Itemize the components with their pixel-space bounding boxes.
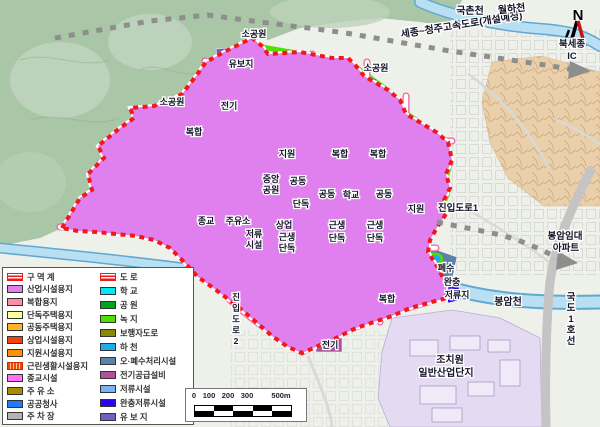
legend-item: 상업시설용지 <box>7 335 98 346</box>
legend-item: 주 차 장 <box>7 411 98 422</box>
map-label: 소공원 <box>242 28 267 39</box>
legend-item: 주 유 소 <box>7 385 98 396</box>
legend-item: 하 천 <box>100 341 191 352</box>
legend-item: 종교시설 <box>7 373 98 384</box>
scale-segment <box>214 411 233 416</box>
map-label: 봉암천 <box>494 295 522 308</box>
map-label: 지원 <box>408 203 425 214</box>
legend-item: 산업시설용지 <box>7 284 98 295</box>
legend-item: 저류시설 <box>100 383 191 394</box>
map-label: IC <box>567 51 577 62</box>
map-label: 북세종 <box>559 38 585 50</box>
legend-label: 오·폐수처리시설 <box>120 355 176 367</box>
legend-item: 공공청사 <box>7 398 98 409</box>
hill-patch <box>108 14 192 70</box>
legend-label: 지원시설용지 <box>27 347 73 359</box>
legend-item: 전기공급설비 <box>100 369 191 380</box>
legend-swatch <box>100 357 116 365</box>
legend-swatch <box>7 311 23 319</box>
legend-swatch <box>7 273 23 281</box>
legend-swatch <box>7 412 23 420</box>
legend-swatch <box>100 343 116 351</box>
map-label: 저류 <box>246 228 263 239</box>
scale-bar: 0100200300500m <box>185 388 307 422</box>
map-label: 공원 <box>263 184 280 195</box>
map-label: 진입도로1 <box>438 202 479 214</box>
map-label: 소공원 <box>364 62 389 73</box>
map-label: 근생 <box>367 219 384 230</box>
legend-item: 학 교 <box>100 285 191 296</box>
legend-item: 공 원 <box>100 299 191 310</box>
legend-label: 종교시설 <box>27 372 58 384</box>
scale-tick: 100 <box>203 391 216 400</box>
legend-item: 지원시설용지 <box>7 347 98 358</box>
map-label: 주유소 <box>226 216 252 226</box>
legend-item: 오·폐수처리시설 <box>100 355 191 366</box>
legend-swatch <box>100 273 116 281</box>
map-label: 중앙 <box>263 173 280 184</box>
scale-segment <box>253 411 272 416</box>
map-label: 공동 <box>319 189 336 199</box>
legend-label: 공공청사 <box>27 398 58 410</box>
map-label: 아파트 <box>553 242 579 254</box>
map-label: 근생 <box>329 219 346 230</box>
legend-swatch <box>100 399 116 407</box>
legend-label: 유 보 지 <box>120 411 148 423</box>
map-label: 단독 <box>293 198 310 209</box>
legend-item: 공동주택용지 <box>7 322 98 333</box>
legend-swatch <box>7 323 23 331</box>
legend-label: 학 교 <box>120 285 138 297</box>
legend-item: 복합용지 <box>7 296 98 307</box>
map-label: 폐수 <box>438 262 455 273</box>
legend-label: 주 유 소 <box>27 385 55 397</box>
legend-swatch <box>7 349 23 357</box>
legend-swatch <box>100 413 116 421</box>
legend-label: 상업시설용지 <box>27 334 73 346</box>
map-label: 지원 <box>279 148 296 159</box>
legend-label: 도 로 <box>120 271 138 283</box>
map-label: 복합 <box>379 293 396 304</box>
map-label: 종교 <box>198 216 215 226</box>
map-label: 단독 <box>367 232 384 243</box>
legend-label: 전기공급설비 <box>120 369 166 381</box>
map-label: 학교 <box>343 189 360 200</box>
legend-swatch <box>7 336 23 344</box>
legend-label: 단독주택용지 <box>27 309 73 321</box>
map-label: 시설 <box>246 239 263 250</box>
map-label: 유보지 <box>229 58 254 69</box>
legend-label: 산업시설용지 <box>27 283 73 295</box>
legend-box: 구 역 계산업시설용지복합용지단독주택용지공동주택용지상업시설용지지원시설용지근… <box>2 267 194 425</box>
legend-label: 공동주택용지 <box>27 321 73 333</box>
legend-swatch <box>100 315 116 323</box>
legend-swatch <box>100 301 116 309</box>
scale-segment <box>272 411 291 416</box>
legend-label: 보행자도로 <box>120 327 158 339</box>
legend-swatch <box>100 287 116 295</box>
map-label: 근생 <box>279 231 296 242</box>
legend-item: 구 역 계 <box>7 271 98 282</box>
scale-segment <box>233 411 252 416</box>
map-label: 공동 <box>376 189 393 199</box>
legend-swatch <box>100 385 116 393</box>
legend-column-left: 구 역 계산업시설용지복합용지단독주택용지공동주택용지상업시설용지지원시설용지근… <box>7 271 98 422</box>
legend-item: 유 보 지 <box>100 411 191 422</box>
legend-item: 녹 지 <box>100 313 191 324</box>
scale-tick: 500m <box>271 391 290 400</box>
scale-tick: 0 <box>192 391 196 400</box>
landuse-map-page: N 세종~청주고속도로(개설예정)국촌천월하천북세종IC소공원유보지소공원소공원… <box>0 0 600 427</box>
legend-item: 단독주택용지 <box>7 309 98 320</box>
legend-swatch <box>7 285 23 293</box>
scale-tick-labels: 0100200300500m <box>186 391 306 401</box>
map-label: 봉암임대 <box>548 230 583 242</box>
legend-item: 보행자도로 <box>100 327 191 338</box>
legend-label: 하 천 <box>120 341 138 353</box>
map-label: 완충 <box>444 276 461 287</box>
map-label: 단독 <box>279 242 296 253</box>
legend-label: 복합용지 <box>27 296 58 308</box>
legend-item: 완충저류시설 <box>100 397 191 408</box>
legend-swatch <box>7 298 23 306</box>
scale-tick: 200 <box>222 391 235 400</box>
legend-swatch <box>7 362 23 370</box>
map-label: 일반산업단지 <box>418 366 473 379</box>
scale-tick: 300 <box>241 391 254 400</box>
legend-label: 저류시설 <box>120 383 151 395</box>
map-label: 조치원 <box>436 353 464 366</box>
map-label: 복합 <box>186 126 203 137</box>
legend-item: 근린생활시설용지 <box>7 360 98 371</box>
scale-bar-segments <box>194 405 292 417</box>
map-label: 전기 <box>322 339 339 350</box>
map-label: 전기 <box>221 100 238 111</box>
legend-swatch <box>100 371 116 379</box>
map-label: 공동 <box>290 176 307 186</box>
hill-patch <box>10 42 110 118</box>
legend-swatch <box>100 329 116 337</box>
legend-item: 도 로 <box>100 271 191 282</box>
map-label: 복합 <box>370 148 387 159</box>
legend-swatch <box>7 400 23 408</box>
legend-label: 완충저류시설 <box>120 397 166 409</box>
legend-label: 근린생활시설용지 <box>27 360 88 372</box>
map-label: 단독 <box>329 232 346 243</box>
map-label: 소공원 <box>160 96 185 107</box>
map-label: 국촌천 <box>456 4 484 17</box>
legend-label: 주 차 장 <box>27 410 55 422</box>
legend-label: 공 원 <box>120 299 138 311</box>
map-label: 상업 <box>276 219 293 230</box>
map-label: 저류지 <box>445 289 470 300</box>
legend-swatch <box>7 374 23 382</box>
legend-label: 녹 지 <box>120 313 138 325</box>
legend-swatch <box>7 387 23 395</box>
legend-label: 구 역 계 <box>27 271 55 283</box>
legend-column-right: 도 로학 교공 원녹 지보행자도로하 천오·폐수처리시설전기공급설비저류시설완충… <box>100 271 191 422</box>
map-label: 복합 <box>332 148 349 159</box>
scale-segment <box>195 411 214 416</box>
